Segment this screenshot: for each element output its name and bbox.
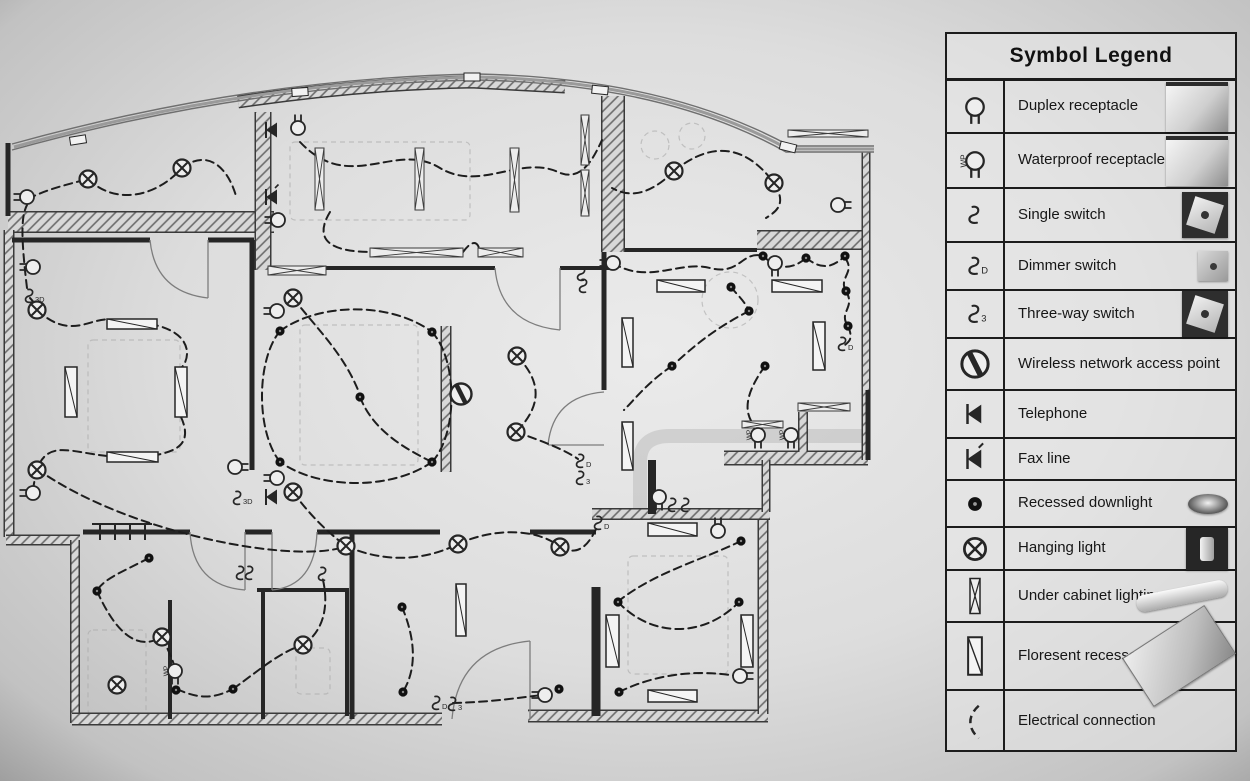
wireless-access-point-icon	[451, 384, 472, 405]
svg-text:WP: WP	[959, 154, 968, 167]
fluorescent-recessed-light-icon	[813, 322, 825, 370]
legend-row-photo	[1166, 136, 1228, 186]
under-cabinet-lighting-icon	[798, 403, 850, 411]
switch-icon: 3D	[26, 289, 46, 304]
legend-row-photo	[1198, 251, 1228, 281]
fluorescent-recessed-light-icon	[648, 690, 697, 702]
under-cabinet-lighting-icon	[581, 170, 589, 216]
legend-row-fluorescent: Floresent recessed light	[947, 623, 1235, 691]
fax-line-icon	[947, 439, 1005, 479]
fluorescent-icon	[947, 623, 1005, 689]
fluorescent-recessed-light-icon	[622, 422, 633, 470]
fluorescent-recessed-light-icon	[107, 319, 157, 329]
legend-row-telephone: Telephone	[947, 391, 1235, 439]
legend-title: Symbol Legend	[947, 34, 1235, 81]
switch-icon	[580, 279, 587, 292]
recessed-downlight-icon	[355, 392, 364, 401]
hanging-light-icon	[450, 536, 467, 553]
recessed-downlight-icon	[228, 684, 237, 693]
legend-row-duplex-receptacle: Duplex receptacle	[947, 81, 1235, 134]
legend-row-electrical-connection: Electrical connection	[947, 691, 1235, 752]
under-cabinet-lighting-icon	[268, 266, 326, 275]
legend-row-photo	[1182, 192, 1228, 238]
recessed-downlight-icon	[734, 597, 743, 606]
duplex-receptacle-icon	[20, 486, 41, 500]
under-cabinet-lighting-icon	[478, 248, 523, 257]
legend-row-photo	[1188, 494, 1228, 514]
fluorescent-recessed-light-icon	[741, 615, 753, 667]
recessed-downlight-icon	[92, 586, 101, 595]
duplex-receptacle-icon	[264, 471, 285, 485]
walls	[6, 82, 868, 723]
hanging-light-icon	[509, 348, 526, 365]
legend-row-photo	[1166, 82, 1228, 132]
recessed-downlight-icon	[144, 553, 153, 562]
svg-text:3D: 3D	[243, 497, 253, 506]
legend-row-photo	[1182, 291, 1228, 337]
svg-text:3: 3	[981, 314, 986, 324]
switch-icon: D	[433, 696, 448, 711]
recessed-downlight-icon	[275, 457, 284, 466]
hanging-light-icon	[947, 528, 1005, 569]
duplex-receptacle-icon	[14, 190, 35, 204]
recessed-downlight-icon	[760, 361, 769, 370]
duplex-receptacle-icon	[733, 669, 754, 683]
fluorescent-recessed-light-icon	[65, 367, 77, 417]
legend-row-label: Wireless network access point	[1005, 339, 1235, 389]
svg-text:WP: WP	[746, 430, 753, 440]
single-switch-icon	[947, 189, 1005, 241]
svg-text:3: 3	[586, 477, 590, 486]
svg-text:WP: WP	[779, 430, 786, 440]
svg-text:D: D	[848, 343, 854, 352]
hanging-light-icon	[338, 538, 355, 555]
recessed-downlight-icon	[726, 282, 735, 291]
telephone-icon	[266, 489, 277, 505]
recessed-downlight-icon	[171, 685, 180, 694]
recessed-downlight-icon	[554, 684, 563, 693]
svg-text:3: 3	[458, 703, 462, 712]
photo-of-electrical-plan: WPWPWP3D3DD3D3DD Symbol Legend Duplex re…	[0, 0, 1250, 781]
recessed-downlight-icon	[843, 321, 852, 330]
recessed-downlight-icon	[667, 361, 676, 370]
legend-row-dimmer-switch: DDimmer switch	[947, 243, 1235, 291]
recessed-downlight-icon	[275, 326, 284, 335]
hanging-light-icon	[766, 175, 783, 192]
legend-rows: Duplex receptacleWPWaterproof receptacle…	[947, 81, 1235, 752]
legend-row-label: Fax line	[1005, 439, 1235, 479]
under-cabinet-icon	[947, 571, 1005, 621]
under-cabinet-lighting-icon	[315, 148, 324, 210]
waterproof-receptacle-icon: WP	[947, 134, 1005, 187]
fluorescent-recessed-light-icon	[622, 318, 633, 367]
door-swings	[150, 240, 604, 719]
fluorescent-recessed-light-icon	[606, 615, 619, 667]
legend-row-recessed-downlight: Recessed downlight	[947, 481, 1235, 528]
three-way-switch-icon: 3	[947, 291, 1005, 337]
svg-text:3D: 3D	[35, 295, 45, 304]
hanging-light-icon	[174, 160, 191, 177]
under-cabinet-lighting-icon	[742, 421, 783, 428]
symbol-legend-panel: Symbol Legend Duplex receptacleWPWaterpr…	[945, 32, 1237, 752]
hanging-light-icon	[508, 424, 525, 441]
fluorescent-recessed-light-icon	[175, 367, 187, 417]
duplex-receptacle-icon	[264, 304, 285, 318]
svg-text:D: D	[604, 522, 610, 531]
hanging-light-icon	[285, 484, 302, 501]
duplex-receptacle-icon	[768, 256, 782, 277]
duplex-receptacle-icon	[831, 198, 852, 212]
recessed-downlight-icon	[801, 253, 810, 262]
under-cabinet-lighting-icon	[788, 130, 868, 137]
wireless-ap-icon	[947, 339, 1005, 389]
under-cabinet-lighting-icon	[581, 115, 589, 165]
recessed-downlight-icon	[614, 687, 623, 696]
hanging-light-icon	[285, 290, 302, 307]
legend-row-wireless-ap: Wireless network access point	[947, 339, 1235, 391]
duplex-receptacle-icon	[228, 460, 249, 474]
fluorescent-recessed-light-icon	[772, 280, 822, 292]
switch-icon: 3	[577, 471, 591, 486]
svg-text:D: D	[981, 266, 988, 276]
waterproof-receptacle-icon: WP	[746, 428, 765, 449]
hanging-light-icon	[80, 171, 97, 188]
recessed-downlight-icon	[758, 251, 767, 260]
under-cabinet-lighting-icon	[510, 148, 519, 212]
fluorescent-recessed-light-icon	[107, 452, 158, 462]
under-cabinet-lighting-icon	[370, 248, 463, 257]
duplex-receptacle-icon	[20, 260, 41, 274]
fluorescent-recessed-light-icon	[456, 584, 466, 636]
hanging-light-icon	[109, 677, 126, 694]
svg-text:D: D	[442, 702, 448, 711]
electrical-symbols: WPWPWP3D3DD3D3DD	[14, 115, 855, 713]
recessed-downlight-icon	[744, 306, 753, 315]
switch-icon: 3	[449, 697, 463, 712]
legend-row-label: Telephone	[1005, 391, 1235, 437]
recessed-downlight-icon	[840, 251, 849, 260]
recessed-downlight-icon	[736, 536, 745, 545]
recessed-downlight-icon	[427, 327, 436, 336]
waterproof-receptacle-icon: WP	[163, 664, 182, 685]
recessed-downlight-icon	[397, 602, 406, 611]
hanging-light-icon	[29, 302, 46, 319]
fluorescent-recessed-light-icon	[648, 523, 697, 536]
electrical-connection-icon	[947, 691, 1005, 752]
dimmer-switch-icon: D	[947, 243, 1005, 289]
switch-icon	[237, 566, 244, 579]
legend-row-photo	[1186, 528, 1228, 570]
recessed-downlight-icon	[841, 286, 850, 295]
duplex-receptacle-icon	[291, 115, 305, 136]
legend-row-hanging-light: Hanging light	[947, 528, 1235, 571]
hanging-light-icon	[666, 163, 683, 180]
legend-row-label: Electrical connection	[1005, 691, 1235, 752]
hanging-light-icon	[29, 462, 46, 479]
legend-row-waterproof-receptacle: WPWaterproof receptacle	[947, 134, 1235, 189]
recessed-downlight-icon	[613, 597, 622, 606]
legend-row-single-switch: Single switch	[947, 189, 1235, 243]
hanging-light-icon	[295, 637, 312, 654]
duplex-receptacle-icon	[711, 518, 725, 539]
hanging-light-icon	[552, 539, 569, 556]
switch-icon	[246, 566, 253, 579]
legend-row-fax-line: Fax line	[947, 439, 1235, 481]
recessed-downlight-icon	[398, 687, 407, 696]
waterproof-receptacle-icon: WP	[779, 428, 798, 449]
telephone-icon	[947, 391, 1005, 437]
legend-row-three-way-switch: 3Three-way switch	[947, 291, 1235, 339]
hanging-light-icon	[154, 629, 171, 646]
switch-icon: D	[577, 454, 592, 469]
under-cabinet-lighting-icon	[415, 148, 424, 210]
fluorescent-recessed-light-icon	[657, 280, 705, 292]
switch-icon	[319, 567, 326, 580]
svg-text:WP: WP	[163, 666, 170, 676]
switch-icon: 3D	[234, 491, 254, 506]
duplex-receptacle-icon	[947, 81, 1005, 132]
svg-text:D: D	[586, 460, 592, 469]
recessed-downlight-icon	[427, 457, 436, 466]
recessed-downlight-icon	[947, 481, 1005, 526]
